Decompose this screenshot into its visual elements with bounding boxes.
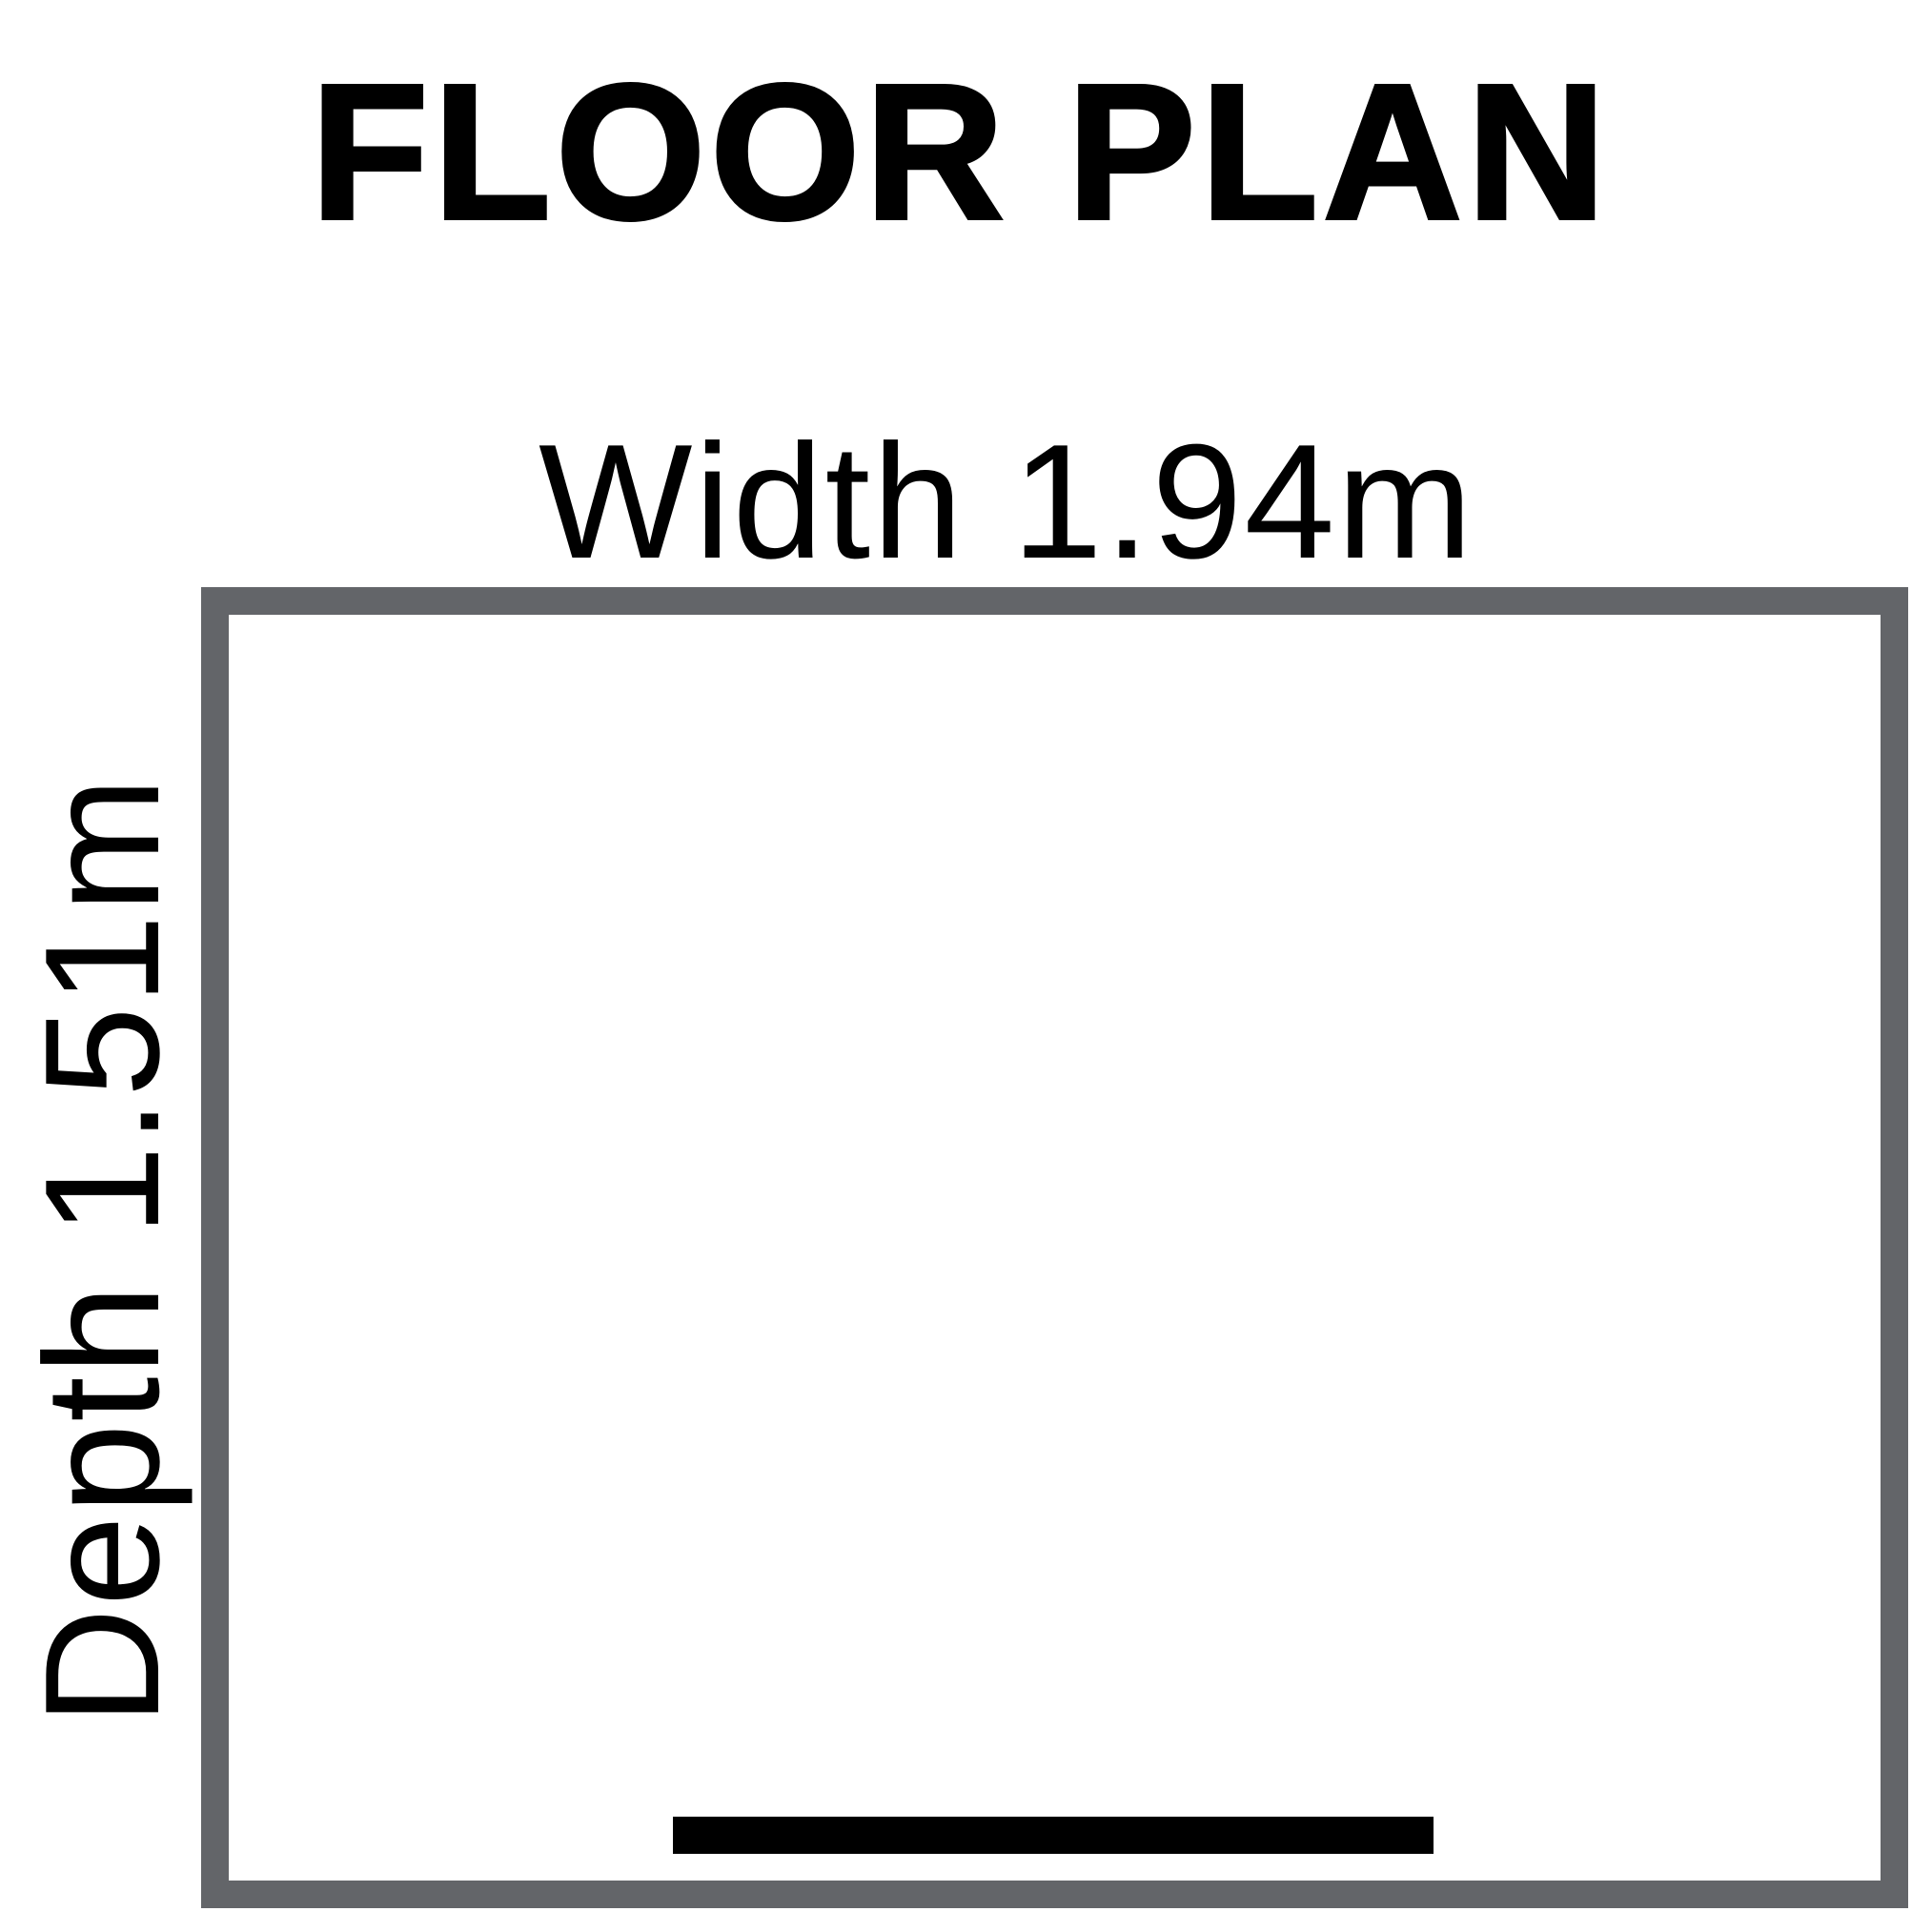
svg-text:Depth 1.51m: Depth 1.51m xyxy=(11,776,193,1726)
svg-text:FLOOR PLAN: FLOOR PLAN xyxy=(311,44,1611,259)
svg-text:Width 1.94m: Width 1.94m xyxy=(539,411,1474,593)
